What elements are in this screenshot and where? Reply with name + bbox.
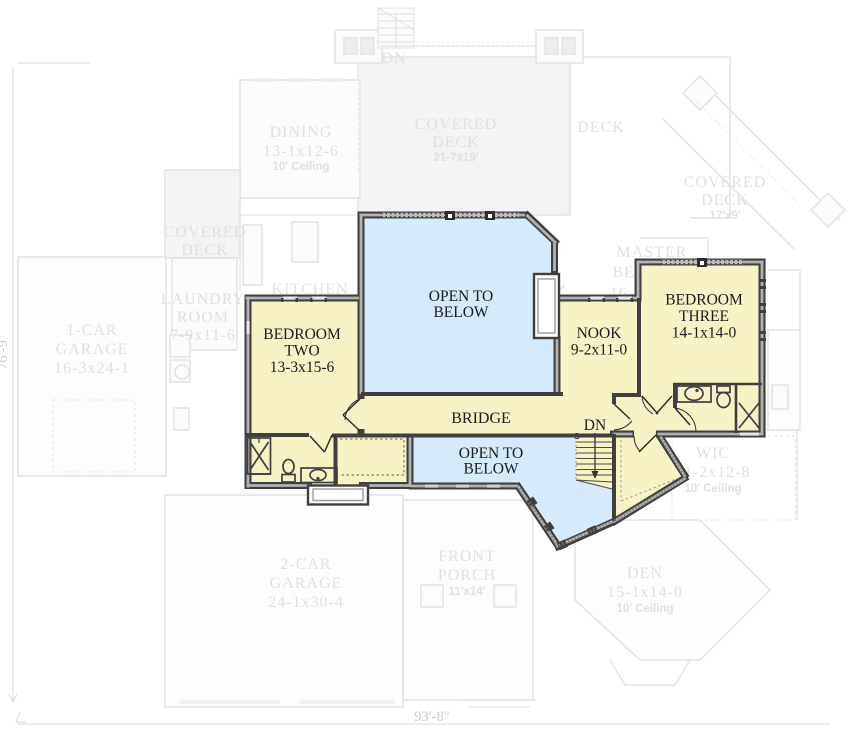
svg-text:GARAGE: GARAGE [56,341,129,358]
svg-text:11′x14′: 11′x14′ [449,586,486,598]
svg-text:10′ Ceiling: 10′ Ceiling [272,161,329,173]
svg-text:76′-9″: 76′-9″ [0,334,11,370]
svg-text:17′x9′: 17′x9′ [709,210,740,222]
svg-text:PORCH: PORCH [438,567,496,584]
svg-text:BELOW: BELOW [433,304,488,321]
svg-text:TWO: TWO [284,343,319,360]
svg-text:NOOK: NOOK [577,325,623,342]
svg-text:THREE: THREE [679,308,729,325]
svg-text:13-1x12-6: 13-1x12-6 [263,143,339,160]
svg-text:COVERED: COVERED [164,224,247,241]
svg-text:BEDROOM: BEDROOM [665,292,743,309]
svg-text:ROOM: ROOM [177,309,229,326]
svg-text:OPEN TO: OPEN TO [429,288,493,305]
svg-text:BEDROOM: BEDROOM [263,326,341,343]
svg-text:DECK: DECK [577,119,625,136]
svg-text:DN: DN [584,417,606,434]
svg-text:DEN: DEN [627,565,663,582]
svg-text:16-3x24-1: 16-3x24-1 [54,360,130,377]
svg-text:10′ Ceiling: 10′ Ceiling [684,483,741,495]
svg-text:15-1x14-0: 15-1x14-0 [607,584,683,601]
svg-text:DN: DN [381,50,406,67]
svg-text:DECK: DECK [701,192,749,209]
svg-text:FRONT: FRONT [438,548,495,565]
svg-text:2-CAR: 2-CAR [280,556,331,573]
svg-text:BRIDGE: BRIDGE [451,410,511,427]
svg-text:14-1x14-0: 14-1x14-0 [672,325,737,342]
svg-text:10′ Ceiling: 10′ Ceiling [616,603,673,615]
svg-text:DECK: DECK [181,242,229,259]
svg-text:MASTER: MASTER [617,244,688,261]
svg-text:9-2x11-0: 9-2x11-0 [571,342,627,359]
svg-text:GARAGE: GARAGE [270,575,343,592]
svg-text:21-7x19′: 21-7x19′ [434,152,479,164]
svg-text:DECK: DECK [432,134,480,151]
svg-text:WIC: WIC [696,445,730,462]
svg-text:LAUNDRY: LAUNDRY [161,291,245,308]
svg-text:DINING: DINING [270,124,333,141]
svg-text:OPEN TO: OPEN TO [459,445,523,462]
svg-text:COVERED: COVERED [415,116,498,133]
svg-text:COVERED: COVERED [684,174,767,191]
svg-text:1-CAR: 1-CAR [66,322,117,339]
svg-text:BELOW: BELOW [463,461,518,478]
svg-text:7-9x11-6: 7-9x11-6 [170,327,236,344]
svg-text:24-1x30-4: 24-1x30-4 [268,594,344,611]
svg-text:93′-8″: 93′-8″ [414,709,450,725]
svg-text:13-3x15-6: 13-3x15-6 [270,359,335,376]
